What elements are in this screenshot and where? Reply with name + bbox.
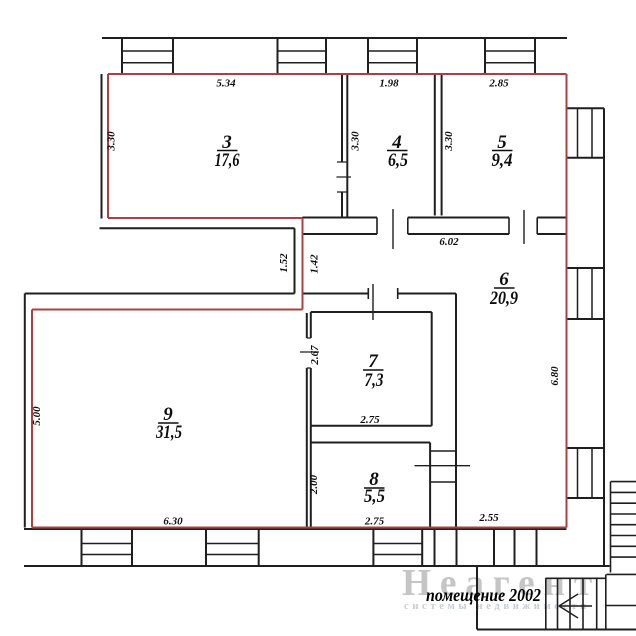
svg-text:2.75: 2.75 [359, 414, 380, 426]
svg-text:5,5: 5,5 [364, 486, 385, 507]
svg-text:3.30: 3.30 [443, 131, 455, 152]
svg-text:3.30: 3.30 [350, 131, 362, 152]
svg-text:6.80: 6.80 [549, 366, 561, 386]
svg-text:2.75: 2.75 [364, 516, 385, 528]
svg-text:2.55: 2.55 [478, 512, 499, 524]
svg-text:2.00: 2.00 [308, 474, 320, 495]
svg-text:2.85: 2.85 [488, 78, 509, 90]
svg-text:1.98: 1.98 [379, 78, 399, 90]
svg-text:1.52: 1.52 [278, 253, 290, 273]
svg-text:6,5: 6,5 [388, 150, 408, 171]
svg-text:7: 7 [368, 351, 379, 372]
svg-text:5.00: 5.00 [31, 406, 43, 426]
svg-text:6: 6 [499, 269, 509, 290]
svg-text:6.30: 6.30 [163, 516, 183, 528]
svg-text:2.67: 2.67 [309, 345, 321, 366]
svg-text:17,6: 17,6 [215, 150, 240, 171]
svg-text:20,9: 20,9 [489, 288, 518, 309]
svg-text:1.42: 1.42 [309, 254, 321, 274]
svg-text:31,5: 31,5 [155, 422, 182, 443]
svg-text:6.02: 6.02 [439, 236, 459, 248]
svg-text:помещение 2002: помещение 2002 [426, 585, 541, 605]
svg-text:5.34: 5.34 [216, 78, 236, 90]
svg-text:3.30: 3.30 [106, 131, 118, 152]
svg-text:9,4: 9,4 [492, 150, 513, 171]
svg-text:7,3: 7,3 [365, 370, 384, 391]
